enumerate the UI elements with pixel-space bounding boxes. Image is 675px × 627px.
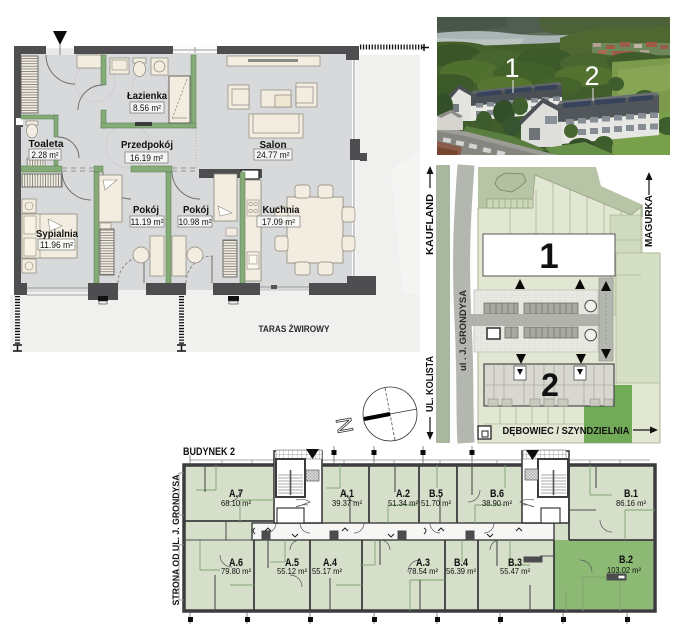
svg-text:2.28 m²: 2.28 m²: [32, 150, 59, 160]
svg-text:38.90 m²: 38.90 m²: [482, 499, 512, 508]
svg-text:N: N: [331, 415, 358, 435]
svg-text:1: 1: [504, 53, 519, 83]
svg-text:51.34 m²: 51.34 m²: [388, 499, 418, 508]
svg-text:55.17 m²: 55.17 m²: [312, 567, 342, 576]
svg-text:DĘBOWIEC / SZYNDZIELNIA: DĘBOWIEC / SZYNDZIELNIA: [503, 425, 630, 437]
svg-text:16.19 m²: 16.19 m²: [130, 153, 163, 163]
svg-text:51.70 m²: 51.70 m²: [421, 499, 451, 508]
svg-text:78.54 m²: 78.54 m²: [408, 567, 438, 576]
svg-text:ul . J. GRONDYSA: ul . J. GRONDYSA: [458, 290, 469, 371]
svg-text:STRONA OD UL. J. GRONDYSA: STRONA OD UL. J. GRONDYSA: [171, 474, 181, 605]
svg-text:55.12 m²: 55.12 m²: [277, 567, 307, 576]
svg-text:Pokój: Pokój: [133, 204, 159, 216]
svg-text:2: 2: [584, 61, 599, 91]
svg-text:TARAS ŻWIROWY: TARAS ŻWIROWY: [259, 324, 331, 335]
svg-text:MAGURKA: MAGURKA: [643, 195, 655, 247]
svg-text:Pokój: Pokój: [183, 204, 209, 216]
svg-text:10.98 m²: 10.98 m²: [179, 217, 212, 227]
svg-text:11.96 m²: 11.96 m²: [40, 240, 73, 250]
svg-text:KAUFLAND: KAUFLAND: [424, 194, 436, 255]
svg-text:103.02 m²: 103.02 m²: [607, 566, 641, 575]
svg-text:Toaleta: Toaleta: [29, 138, 64, 150]
svg-text:Kuchnia: Kuchnia: [263, 204, 300, 216]
svg-text:Przedpokój: Przedpokój: [121, 139, 173, 151]
svg-text:68.10 m²: 68.10 m²: [221, 499, 251, 508]
svg-text:24.77 m²: 24.77 m²: [257, 150, 290, 160]
svg-text:2: 2: [541, 367, 559, 403]
svg-text:UL. KOLISTA: UL. KOLISTA: [424, 356, 436, 412]
svg-text:Sypialnia: Sypialnia: [36, 228, 78, 240]
svg-text:86.16 m²: 86.16 m²: [616, 499, 646, 508]
svg-text:39.37 m²: 39.37 m²: [332, 499, 362, 508]
svg-text:BUDYNEK 2: BUDYNEK 2: [183, 446, 235, 458]
svg-text:B.2: B.2: [619, 554, 633, 566]
svg-text:56.39 m²: 56.39 m²: [446, 567, 476, 576]
svg-text:17.09 m²: 17.09 m²: [262, 217, 295, 227]
svg-text:Łazienka: Łazienka: [127, 90, 167, 102]
svg-text:8.56 m²: 8.56 m²: [133, 103, 161, 113]
svg-text:1: 1: [539, 237, 558, 276]
svg-text:11.19 m²: 11.19 m²: [131, 217, 164, 227]
svg-text:79.80 m²: 79.80 m²: [221, 567, 251, 576]
svg-text:55.47 m²: 55.47 m²: [500, 567, 530, 576]
